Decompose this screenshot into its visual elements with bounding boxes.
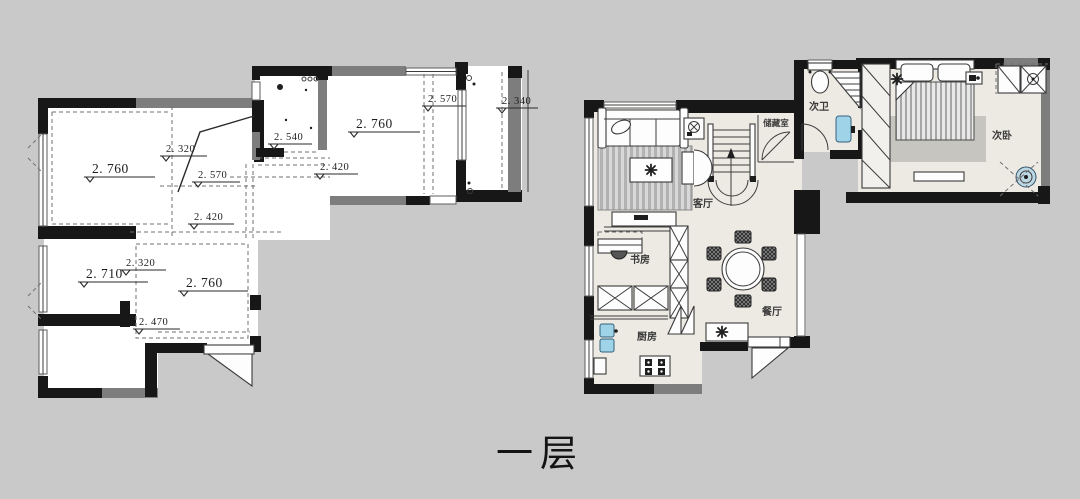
level-label: 2. 470 (139, 317, 168, 328)
side-table-icon (684, 118, 704, 139)
level-label: 2. 570 (428, 94, 457, 105)
armchair-icon (682, 150, 712, 186)
level-label: 2. 760 (186, 275, 223, 290)
room-label-storage: 储藏室 (762, 118, 789, 128)
room-label-kitchen: 厨房 (637, 330, 657, 343)
entry-cabinet-icon (706, 323, 748, 341)
entry-porch-left (204, 345, 254, 386)
room-label-bath: 次卫 (809, 100, 829, 113)
bed-bench-icon (914, 172, 964, 181)
tv-cabinet-icon (612, 212, 676, 226)
dining-table-icon (722, 248, 764, 290)
coffee-table-icon (630, 158, 672, 182)
sofa-icon (598, 108, 688, 148)
left-plan: 2. 760 2. 320 2. 570 2. 540 2. 760 2. 57… (28, 62, 538, 398)
level-label: 2. 340 (502, 96, 531, 107)
level-label: 2. 710 (86, 266, 123, 281)
level-label: 2. 570 (198, 170, 227, 181)
stove-icon (640, 356, 670, 376)
entry-porch-right (748, 337, 790, 378)
ceiling-fan-icon (892, 74, 903, 85)
level-label: 2. 320 (126, 258, 155, 269)
level-label: 2. 540 (274, 132, 303, 143)
floor-title: 一层 (0, 423, 1080, 477)
kitchen-step (594, 358, 606, 374)
ac-unit-icon (996, 64, 1048, 94)
level-label: 2. 760 (356, 116, 393, 131)
floorplan-page: 2. 760 2. 320 2. 570 2. 540 2. 760 2. 57… (0, 0, 1080, 499)
room-label-living: 客厅 (692, 197, 713, 210)
room-label-bedroom: 次卧 (992, 129, 1012, 142)
level-label: 2. 320 (166, 144, 195, 155)
room-label-dining: 餐厅 (761, 305, 782, 318)
level-label: 2. 420 (320, 162, 349, 173)
wardrobe-icon (862, 64, 890, 188)
bedside-unit-icon (966, 72, 982, 84)
right-plan: 客厅 书房 厨房 餐厅 储藏室 次卫 次卧 (584, 58, 1050, 394)
study-cabinet-column (670, 226, 688, 318)
room-label-study: 书房 (630, 253, 650, 266)
level-label: 2. 420 (194, 212, 223, 223)
level-label: 2. 760 (92, 161, 129, 176)
